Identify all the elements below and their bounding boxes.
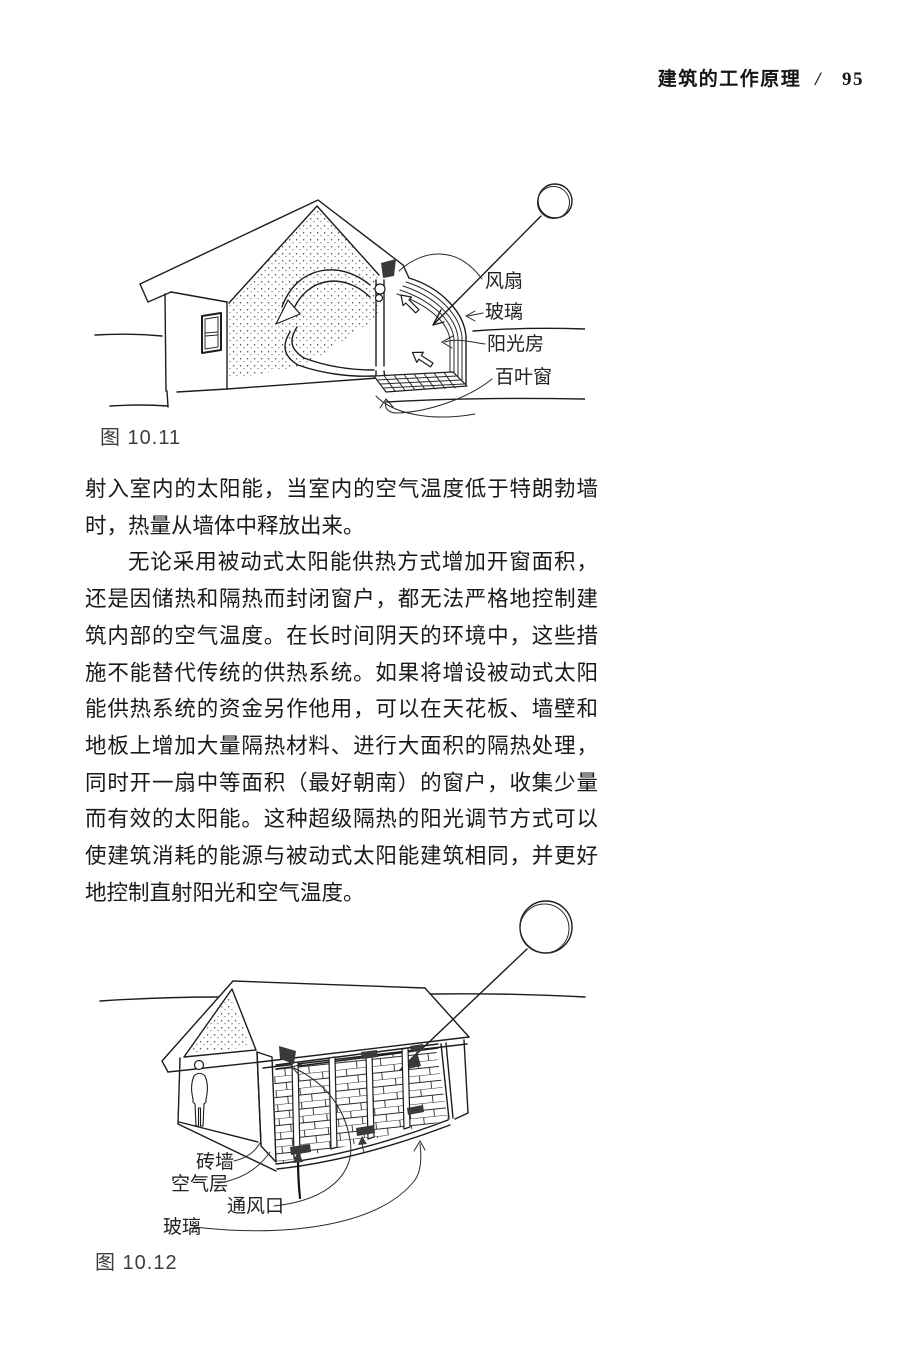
sun-icon bbox=[538, 184, 573, 219]
leader-lines bbox=[376, 254, 492, 417]
label-sunroom: 阳光房 bbox=[487, 333, 544, 355]
roof-vent bbox=[381, 259, 396, 278]
label-air-layer: 空气层 bbox=[171, 1173, 228, 1195]
horizon-line bbox=[100, 994, 585, 1001]
label-fan: 风扇 bbox=[485, 270, 523, 292]
glazing bbox=[397, 278, 466, 385]
label-vent: 通风口 bbox=[227, 1195, 284, 1217]
book-page: 建筑的工作原理 / 95 bbox=[0, 0, 916, 1359]
figure2-caption: 图 10.12 bbox=[95, 1246, 178, 1275]
stipple-gable bbox=[190, 994, 251, 1053]
figure-10-12-drawing: 砖墙 空气层 通风口 玻璃 bbox=[80, 900, 600, 1245]
label-glass-2: 玻璃 bbox=[163, 1216, 201, 1238]
page-number: 95 bbox=[842, 69, 864, 91]
page-header: 建筑的工作原理 / 95 bbox=[658, 64, 864, 91]
running-title: 建筑的工作原理 bbox=[658, 64, 802, 91]
window bbox=[202, 313, 221, 353]
paragraph-2: 无论采用被动式太阳能供热方式增加开窗面积，还是因储热和隔热而封闭窗户，都无法严格… bbox=[85, 544, 598, 911]
body-text: 射入室内的太阳能，当室内的空气温度低于特朗勃墙时，热量从墙体中释放出来。 无论采… bbox=[85, 471, 598, 911]
label-brick-wall: 砖墙 bbox=[196, 1151, 234, 1173]
louvered-floor bbox=[374, 372, 467, 392]
sun-icon-2 bbox=[520, 901, 572, 953]
label-louver: 百叶窗 bbox=[495, 366, 552, 388]
person bbox=[192, 1061, 208, 1127]
label-glass: 玻璃 bbox=[485, 301, 523, 323]
figure1-caption: 图 10.11 bbox=[100, 421, 181, 450]
paragraph-1: 射入室内的太阳能，当室内的空气温度低于特朗勃墙时，热量从墙体中释放出来。 bbox=[85, 471, 598, 544]
figure-10-11-drawing: 风扇 玻璃 阳光房 百叶窗 bbox=[85, 175, 585, 425]
header-separator: / bbox=[815, 69, 822, 91]
brick-wall-end bbox=[257, 1052, 276, 1162]
